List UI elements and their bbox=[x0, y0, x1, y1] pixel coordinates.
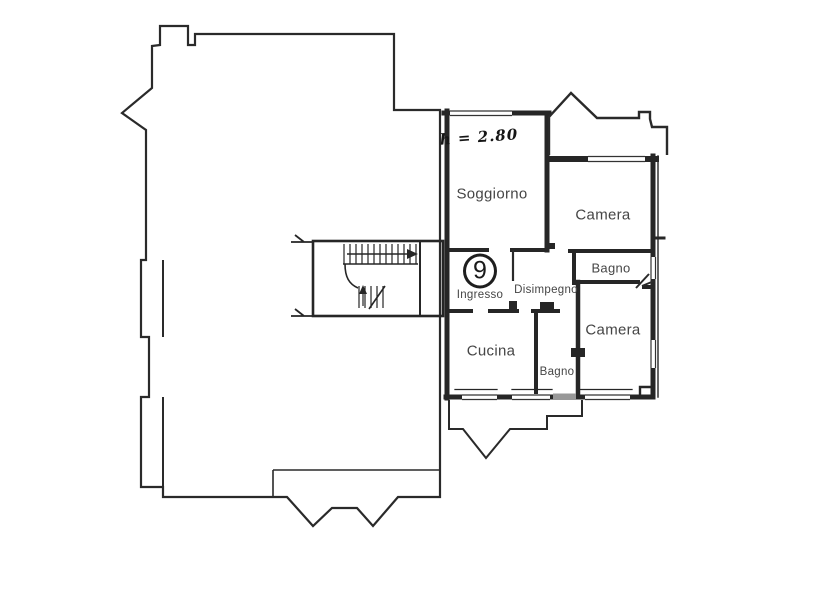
shaded-wall-segment bbox=[553, 394, 576, 401]
room-label-camera-top: Camera bbox=[575, 207, 630, 224]
balcony-outline bbox=[449, 400, 582, 458]
room-label-bagno-bottom: Bagno bbox=[540, 366, 575, 378]
room-label-camera-bottom: Camera bbox=[585, 322, 640, 339]
left-wing-outline bbox=[122, 26, 440, 526]
entrance-bay-outline bbox=[549, 93, 667, 155]
room-label-cucina: Cucina bbox=[467, 343, 516, 360]
stairwell-box bbox=[313, 241, 443, 316]
floor-plan-drawing bbox=[0, 0, 819, 600]
room-label-ingresso: Ingresso bbox=[457, 289, 504, 301]
room-label-bagno-top: Bagno bbox=[591, 261, 630, 276]
floor-plan-page: h = 2.80 9 Soggiorno Camera Bagno Disimp… bbox=[0, 0, 819, 600]
unit-number-badge: 9 bbox=[463, 254, 497, 289]
unit-number: 9 bbox=[473, 256, 487, 285]
left-wing-path bbox=[122, 26, 440, 526]
room-label-soggiorno: Soggiorno bbox=[456, 186, 527, 203]
staircase bbox=[291, 235, 443, 316]
room-label-disimpegno: Disimpegno bbox=[514, 284, 578, 296]
